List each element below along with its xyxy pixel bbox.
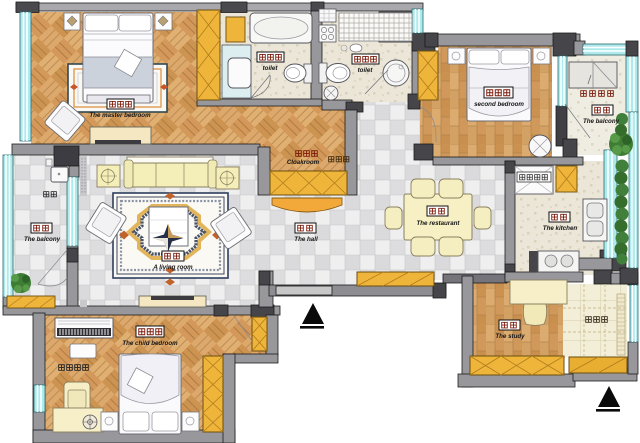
- svg-text:The master bedroom: The master bedroom: [89, 112, 151, 119]
- svg-text:second bedroom: second bedroom: [474, 101, 524, 108]
- svg-text:The child bedroom: The child bedroom: [122, 340, 178, 347]
- svg-text:A living room: A living room: [152, 264, 193, 271]
- svg-text:The kitchen: The kitchen: [543, 225, 578, 232]
- svg-text:The balcony: The balcony: [24, 236, 61, 243]
- svg-text:The restaurant: The restaurant: [417, 220, 461, 227]
- svg-text:toilet: toilet: [263, 65, 279, 72]
- svg-text:The balcony: The balcony: [583, 118, 620, 125]
- svg-text:toilet: toilet: [358, 67, 374, 74]
- svg-text:The study: The study: [495, 333, 525, 340]
- svg-text:Cloakroom: Cloakroom: [287, 159, 320, 166]
- svg-text:The hall: The hall: [294, 236, 318, 243]
